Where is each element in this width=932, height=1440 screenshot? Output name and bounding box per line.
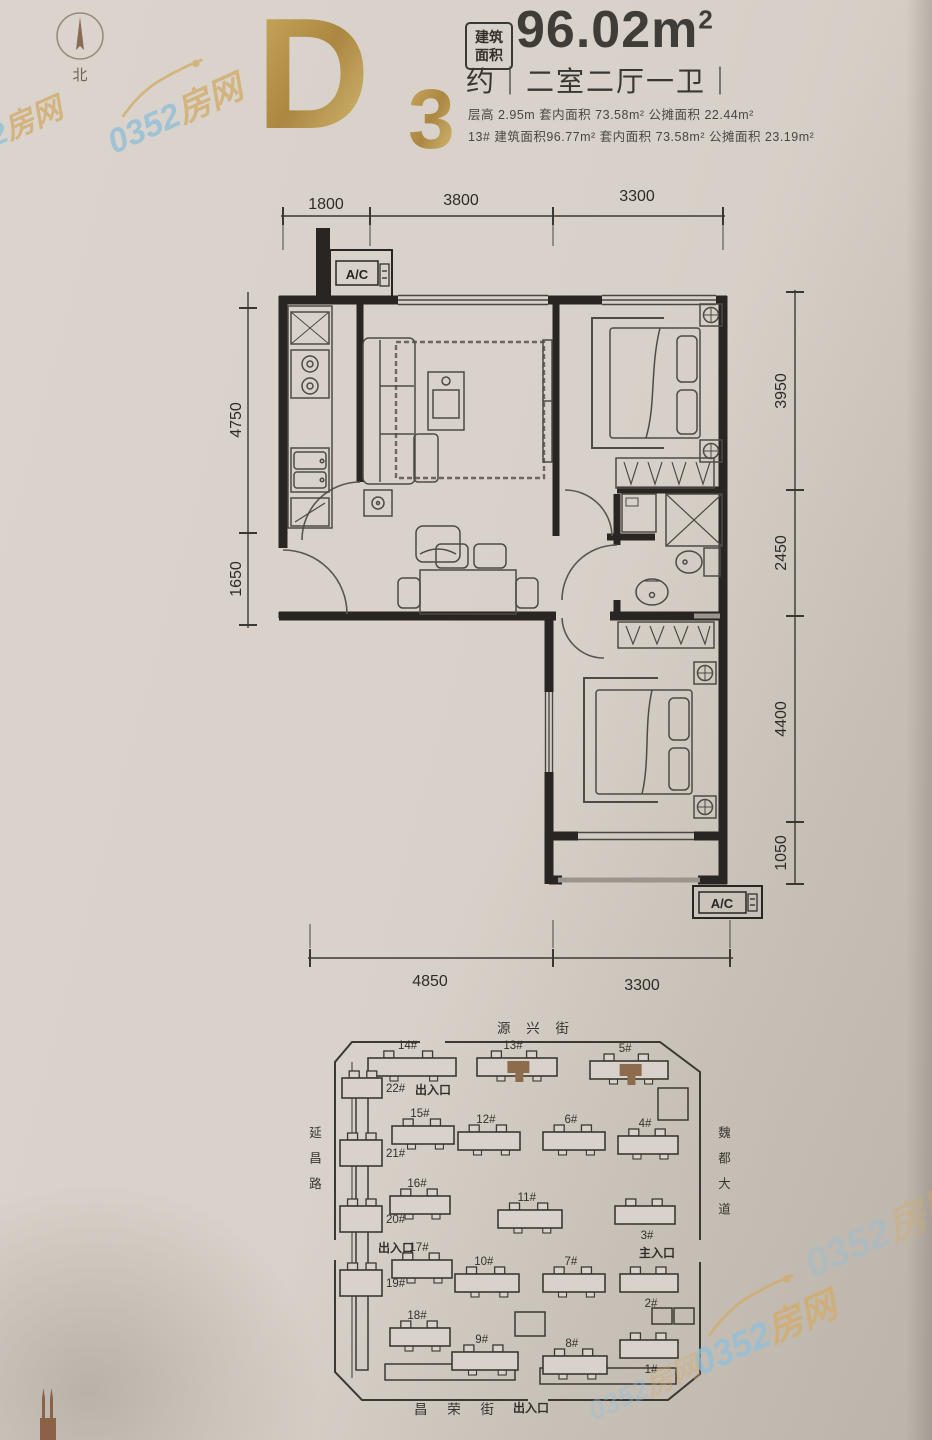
street-label-bottom: 昌 荣 街 — [414, 1402, 502, 1417]
dim-left-1: 4750 — [228, 402, 245, 438]
building-block — [368, 1058, 456, 1076]
building-block — [392, 1126, 454, 1144]
building-label: 11# — [518, 1192, 537, 1204]
building-label: 1# — [645, 1364, 658, 1376]
tower-silhouette — [40, 1388, 56, 1440]
building-16: 16# — [390, 1178, 450, 1219]
building-block — [390, 1196, 450, 1214]
dim-right-3: 4400 — [773, 701, 790, 737]
dining-set — [398, 544, 538, 614]
building-block — [620, 1274, 678, 1292]
rug — [396, 342, 544, 478]
building-15: 15# — [392, 1108, 454, 1149]
building-block — [615, 1206, 675, 1224]
kitchen-fixtures — [288, 306, 332, 528]
entrance-label: 出入口 — [378, 1240, 414, 1255]
dining-table — [420, 570, 516, 614]
floorplan-and-siteplan-drawing: 1800 3800 3300 4750 1650 3950 2450 4400 … — [0, 0, 932, 1440]
ac-label-top: A/C — [346, 267, 369, 282]
building-14: 14# — [368, 1040, 456, 1081]
building-7: 7# — [543, 1256, 605, 1297]
dim-bottom-1: 4850 — [412, 973, 448, 990]
building-8: 8# — [543, 1338, 607, 1379]
site-structure — [658, 1088, 688, 1120]
bed — [610, 328, 700, 438]
building-block — [543, 1356, 607, 1374]
dim-top-2: 3800 — [443, 192, 479, 209]
building-label: 14# — [398, 1040, 418, 1052]
site-structure — [674, 1308, 694, 1324]
dim-right-1: 3950 — [773, 373, 790, 409]
building-9: 9# — [452, 1334, 518, 1375]
building-label: 4# — [639, 1118, 652, 1130]
building-block — [340, 1270, 382, 1296]
building-label: 12# — [476, 1114, 496, 1126]
bedroom2-furniture — [584, 622, 716, 818]
building-label: 18# — [407, 1310, 427, 1322]
street-label-top: 源 兴 街 — [497, 1021, 575, 1036]
ac-unit-top: A/C — [330, 250, 392, 298]
building-block — [340, 1140, 382, 1166]
building-11: 11# — [498, 1192, 562, 1233]
building-block — [543, 1132, 605, 1150]
building-label: 20# — [386, 1214, 406, 1226]
building-label: 9# — [475, 1334, 488, 1346]
building-4: 4# — [618, 1118, 678, 1159]
building-block — [390, 1328, 450, 1346]
building-label: 8# — [565, 1338, 578, 1350]
street-label-right: 魏都大道 — [714, 1126, 733, 1228]
entry-door-arc — [283, 550, 347, 614]
building-label: 2# — [645, 1298, 658, 1310]
dim-top-1: 1800 — [308, 196, 344, 213]
building-18: 18# — [390, 1310, 450, 1351]
building-2: 2# — [620, 1267, 678, 1310]
site-structure — [515, 1312, 545, 1336]
dim-right-2: 2450 — [773, 535, 790, 571]
building-label: 21# — [386, 1148, 406, 1160]
highlighted-unit — [507, 1061, 529, 1073]
kitchen-door-arc — [302, 482, 360, 540]
dim-top-3: 3300 — [619, 188, 655, 205]
entrance-label: 主入口 — [639, 1245, 675, 1260]
dim-bottom-2: 3300 — [624, 977, 660, 994]
building-block — [543, 1274, 605, 1292]
building-10: 10# — [455, 1256, 519, 1297]
bedroom2-door-arc — [562, 618, 604, 658]
building-block — [618, 1136, 678, 1154]
side-table — [364, 490, 392, 516]
building-label: 13# — [503, 1040, 523, 1052]
bedroom1-door-arc — [565, 490, 612, 536]
building-label: 19# — [386, 1278, 406, 1290]
bedroom1-furniture — [592, 304, 722, 488]
highlighted-unit — [620, 1064, 642, 1076]
building-block — [392, 1260, 452, 1278]
living-room-furniture — [363, 338, 552, 562]
building-block — [342, 1078, 382, 1098]
building-13: 13# — [477, 1040, 557, 1082]
building-block — [340, 1206, 382, 1232]
building-block — [620, 1340, 678, 1358]
building-6: 6# — [543, 1114, 605, 1155]
sofa — [363, 338, 415, 484]
building-block — [455, 1274, 519, 1292]
entrance-label: 出入口 — [415, 1082, 451, 1097]
toilet — [676, 551, 702, 573]
building-1: 1# — [620, 1333, 678, 1376]
building-block — [498, 1210, 562, 1228]
street-label-left: 延昌路 — [305, 1126, 324, 1203]
ac-unit-bottom: A/C — [693, 886, 762, 918]
building-label: 7# — [565, 1256, 578, 1268]
building-12: 12# — [458, 1114, 520, 1155]
washing-machine — [622, 494, 656, 532]
building-label: 5# — [619, 1043, 632, 1055]
dim-right-4: 1050 — [773, 835, 790, 871]
entrance-label: 出入口 — [513, 1400, 549, 1415]
building-label: 3# — [641, 1230, 654, 1242]
bathroom-fixtures — [622, 494, 722, 605]
bathroom-door-arc — [562, 545, 617, 600]
building-label: 10# — [474, 1256, 494, 1268]
toilet-tank — [704, 548, 720, 576]
building-label: 16# — [407, 1178, 427, 1190]
building-3: 3# — [615, 1199, 675, 1242]
dim-left-2: 1650 — [228, 561, 245, 597]
siteplan-buildings: 14#13#5#22#21#20#19#15#12#6#4#16#11#3#17… — [340, 1040, 694, 1415]
building-block — [452, 1352, 518, 1370]
building-block — [458, 1132, 520, 1150]
ac-label-bottom: A/C — [711, 896, 734, 911]
flyer-page: 北 D 3 建筑 面积 96.02m2 约｜二室二厅一卫｜ 层高 2.95m 套… — [0, 0, 932, 1440]
building-5: 5# — [590, 1043, 668, 1085]
building-label: 15# — [410, 1108, 430, 1120]
building-label: 22# — [386, 1083, 406, 1095]
building-label: 6# — [565, 1114, 578, 1126]
exterior-walls — [279, 296, 727, 884]
ac-wall-stub — [316, 228, 330, 302]
site-structure — [652, 1308, 672, 1324]
